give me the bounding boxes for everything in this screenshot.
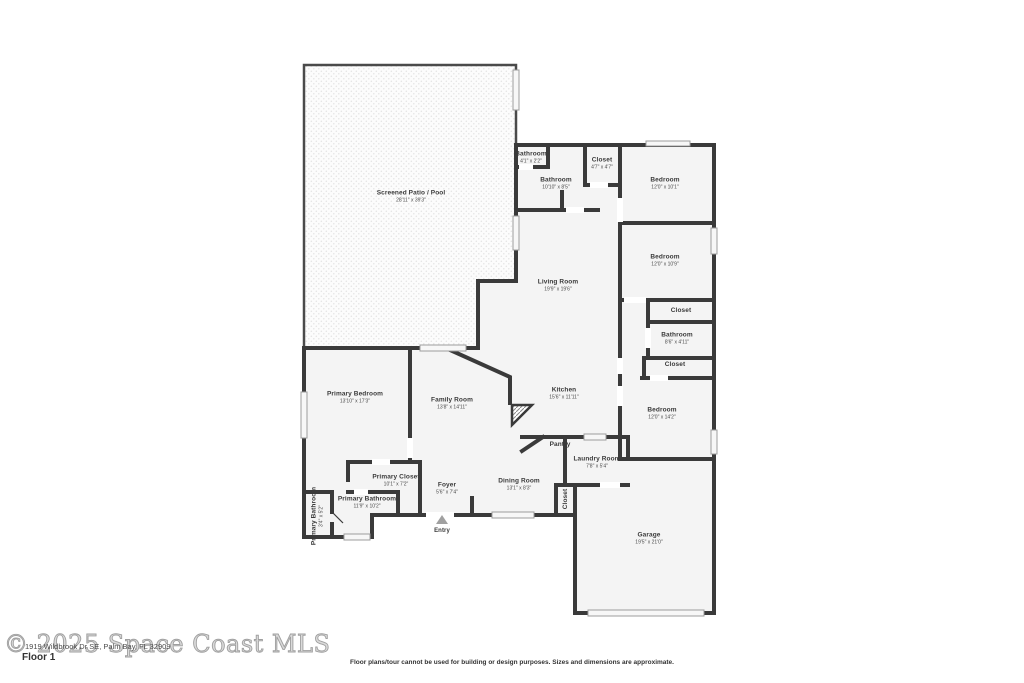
listing-address: 1919 Wildbrook Dr SE, Palm Bay, FL 32909 (25, 642, 171, 651)
floor-plan-page: Screened Patio / Pool 28'11" x 39'3" Bat… (0, 0, 1024, 683)
floor-plan-drawing (0, 0, 1024, 683)
disclaimer-text: Floor plans/tour cannot be used for buil… (0, 659, 1024, 666)
